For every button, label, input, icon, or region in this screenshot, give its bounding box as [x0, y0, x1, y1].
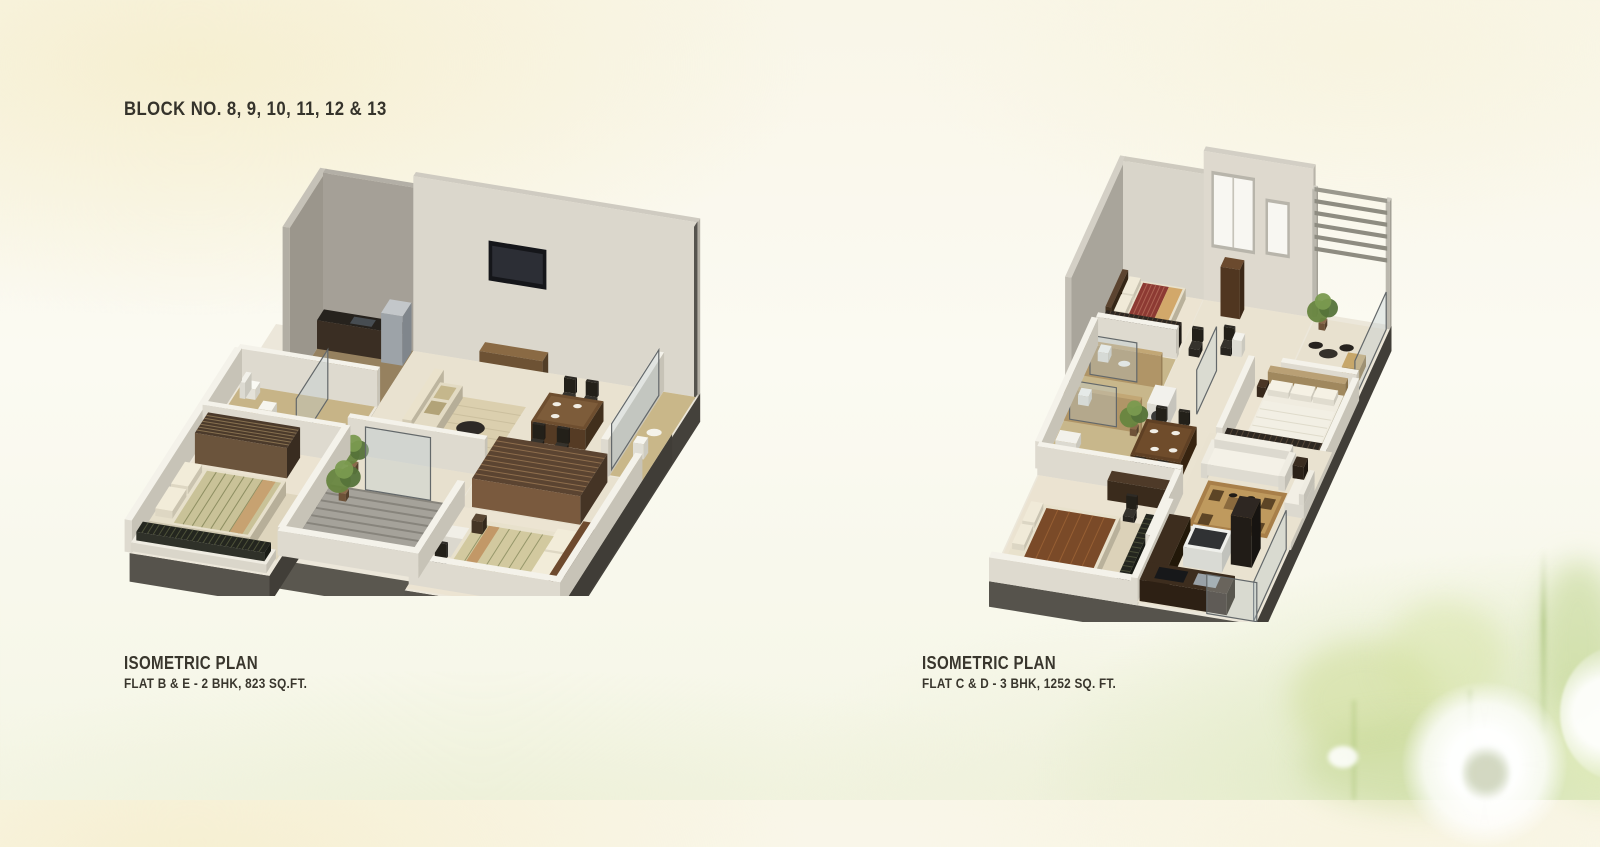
dandelion-puff-partial	[1560, 646, 1600, 781]
dandelion-stem	[1468, 690, 1472, 800]
plan-caption-subtitle: FLAT B & E - 2 BHK, 823 SQ.FT.	[124, 675, 307, 691]
floorplan-3bhk-illustration	[965, 142, 1395, 622]
dandelion-seed-core	[1462, 744, 1510, 802]
green-bokeh	[1552, 690, 1600, 800]
brochure-page: BLOCK NO. 8, 9, 10, 11, 12 & 13 ISOMETRI…	[0, 0, 1600, 800]
dandelion-stem	[1541, 548, 1546, 733]
green-bokeh	[1385, 600, 1505, 710]
green-bokeh	[1290, 640, 1440, 760]
small-white-flower	[1328, 746, 1358, 768]
block-number-title: BLOCK NO. 8, 9, 10, 11, 12 & 13	[124, 99, 387, 121]
dandelion-stem	[1352, 700, 1356, 800]
green-bokeh	[1538, 560, 1600, 730]
plan-caption-subtitle: FLAT C & D - 3 BHK, 1252 SQ. FT.	[922, 675, 1116, 691]
floorplan-2bhk-illustration	[108, 156, 708, 596]
plan-caption-title: ISOMETRIC PLAN	[124, 653, 258, 674]
green-bokeh	[1300, 720, 1530, 810]
dandelion-puff	[1402, 682, 1567, 847]
plan-caption-title: ISOMETRIC PLAN	[922, 653, 1056, 674]
